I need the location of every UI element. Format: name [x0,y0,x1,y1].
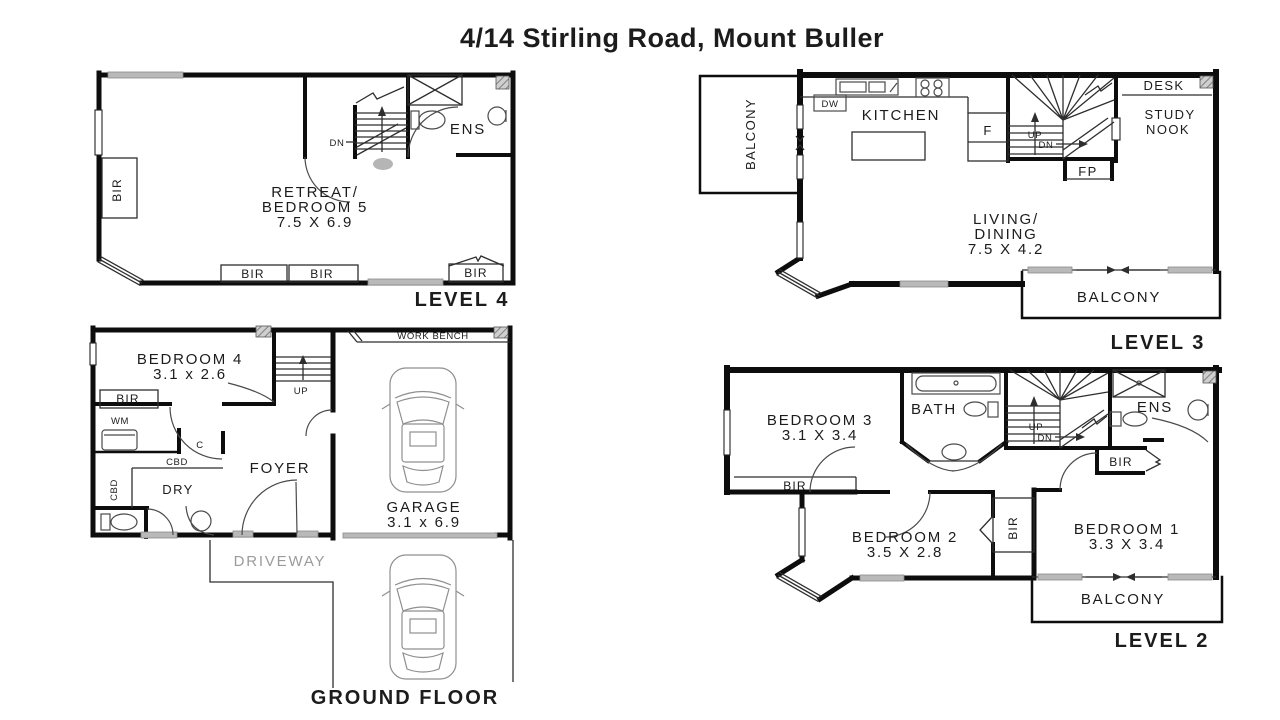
plan-title-level3: LEVEL 3 [1111,332,1206,354]
car-icon-driveway [382,555,464,679]
label-bir-l2-right: BIR [1109,455,1133,469]
label-bath: BATH [911,401,957,418]
label-bedroom2-dims: 3.5 X 2.8 [867,544,943,561]
label-balcony-upper: BALCONY [743,98,758,170]
label-bedroom4-dims: 3.1 x 2.6 [153,366,227,383]
plan-level4: RETREAT/ BEDROOM 5 7.5 X 6.9 ENS DN BIR … [95,72,513,311]
page-title: 4/14 Stirling Road, Mount Buller [460,23,884,53]
car-icon-garage [382,368,464,492]
label-cbd-v: CBD [109,479,120,501]
label-up-ground: UP [294,386,308,397]
plan-title-level4: LEVEL 4 [415,289,510,311]
label-up-l2: UP [1029,422,1043,433]
label-bir-l2-left: BIR [783,479,807,493]
balcony-doors-icon-l2 [1032,573,1216,581]
label-bedroom1-dims: 3.3 X 3.4 [1089,536,1165,553]
plan-title-level2: LEVEL 2 [1115,630,1210,652]
label-dn-l2: DN [1038,433,1053,444]
label-bedroom3-dims: 3.1 X 3.4 [782,427,858,444]
label-retreat-dims: 7.5 X 6.9 [277,214,353,231]
label-bir-ground: BIR [116,392,140,406]
plan-ground: BEDROOM 4 3.1 x 2.6 BIR WM C CBD CBD DRY… [90,326,513,709]
plan-level2: BEDROOM 3 3.1 X 3.4 BATH ENS UP DN BIR B… [724,368,1222,652]
staircase-icon [276,355,331,381]
balcony-doors-icon [1022,266,1216,274]
label-wm: WM [111,416,129,427]
label-study-line1: STUDY [1144,107,1195,122]
label-dry: DRY [162,482,193,497]
staircase-icon [1006,370,1108,448]
plan-level3: BALCONY DW KITCHEN F UP DN FP DESK STUDY… [700,72,1220,354]
label-bir-l4-b1: BIR [241,267,265,281]
label-work-bench: WORK BENCH [397,331,468,342]
label-bir-l4-b3: BIR [464,266,488,280]
label-dw: DW [821,99,838,110]
floorplan-page: 4/14 Stirling Road, Mount Buller [0,0,1280,720]
label-balcony-lower-l3: BALCONY [1077,289,1161,306]
label-desk: DESK [1143,78,1184,93]
label-ens-l2: ENS [1137,399,1173,416]
level4-windows [95,72,509,285]
label-cbd-h: CBD [166,457,188,468]
bath-fixtures [906,373,1002,471]
label-foyer: FOYER [250,460,311,477]
label-fp: FP [1078,164,1097,179]
label-garage-dims: 3.1 x 6.9 [387,514,461,531]
label-ens-l4: ENS [450,121,486,138]
label-bir-l4-b2: BIR [310,267,334,281]
label-living-dims: 7.5 X 4.2 [968,241,1044,258]
label-driveway: DRIVEWAY [234,553,327,570]
label-dn-l4: DN [330,138,345,149]
label-fridge: F [983,123,992,138]
floorplan-canvas: 4/14 Stirling Road, Mount Buller [0,0,1280,720]
label-bir-l4-left: BIR [110,178,124,202]
label-bir-l2-mid: BIR [1006,516,1020,540]
label-kitchen: KITCHEN [862,107,940,124]
label-study-line2: NOOK [1146,122,1190,137]
label-dn-l3: DN [1039,140,1054,151]
staircase-icon [1008,75,1114,159]
label-balcony-l2: BALCONY [1081,591,1165,608]
level3-walls [700,72,1220,318]
label-c: C [196,440,203,451]
plan-title-ground: GROUND FLOOR [311,687,499,709]
